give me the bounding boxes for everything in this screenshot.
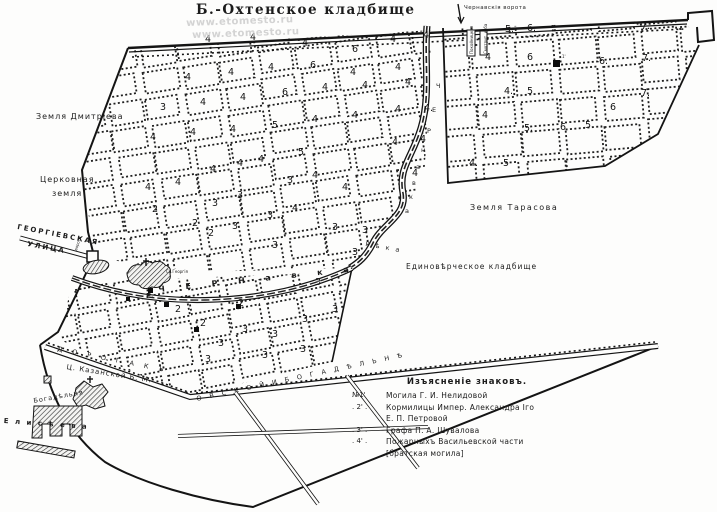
block-number: 4	[342, 182, 348, 193]
legend-row: . 3' .Графа П. А. Шувалова	[352, 426, 582, 435]
block-number: 3	[315, 277, 321, 288]
cemetery-block	[289, 233, 327, 258]
area-dmitrieva: Земля Дмитріева	[36, 113, 124, 121]
cemetery-block	[154, 148, 191, 174]
cemetery-block	[686, 54, 717, 81]
cemetery-block	[302, 69, 337, 95]
area-edinovercheskoe: Единовѣрческое кладбище	[406, 263, 537, 271]
legend-row: Е. П. Петровой	[352, 414, 582, 423]
block-number: 3	[300, 344, 306, 355]
cemetery-block	[111, 126, 148, 152]
cemetery-block	[354, 143, 391, 170]
cemetery-block	[345, 91, 380, 117]
cemetery-block	[648, 116, 688, 143]
block-number: 4	[292, 203, 298, 214]
block-number: 4	[405, 77, 411, 88]
river-letter: Ч	[436, 82, 440, 90]
legend-text: Кормилицы Импер. Александра Iго	[386, 403, 582, 412]
cemetery-block	[610, 154, 648, 182]
cemetery-block	[647, 86, 686, 114]
block-number: 3	[218, 338, 224, 349]
block-number: 4	[312, 114, 318, 125]
cemetery-block	[259, 47, 294, 73]
cemetery-block	[173, 254, 210, 279]
cemetery-block	[483, 131, 523, 157]
block-number: 5.	[524, 123, 533, 134]
cemetery-block	[323, 202, 359, 229]
cemetery-block	[347, 117, 383, 142]
block-number: 4	[322, 82, 328, 93]
keeper-label: Смотрит. изба	[484, 24, 488, 54]
cemetery-block	[282, 207, 319, 233]
river-letter: н	[421, 146, 425, 154]
block-number: 3	[232, 221, 238, 232]
block-number: 3	[287, 175, 293, 186]
block-number: 4	[150, 132, 156, 143]
block-number: 3	[332, 222, 338, 233]
block-number: 6	[560, 122, 566, 133]
cemetery-block	[693, 143, 717, 170]
cemetery-block	[238, 164, 274, 191]
cemetery-block	[438, 104, 478, 130]
block-number: 4	[362, 80, 368, 91]
block-number: 4	[423, 30, 429, 41]
cemetery-block	[143, 67, 181, 93]
cemetery-block	[342, 310, 378, 336]
block-number: 4	[175, 177, 181, 188]
block-number: 7.	[642, 53, 651, 64]
cemetery-block	[278, 346, 313, 372]
block-number: 4	[352, 110, 358, 121]
block-number: 3	[212, 198, 218, 209]
cemetery-block	[137, 400, 173, 424]
river-letter: в	[412, 179, 416, 187]
cemetery-block	[102, 73, 137, 98]
block-number: 3	[205, 354, 211, 365]
cemetery-block	[559, 37, 598, 65]
cemetery-block	[654, 176, 692, 204]
cemetery-block	[679, 0, 717, 20]
cemetery-block	[116, 302, 152, 327]
cemetery-block	[693, 174, 717, 200]
cemetery-block	[261, 74, 297, 99]
block-number: 4	[190, 127, 196, 138]
cemetery-block	[66, 78, 102, 105]
block-number: 2	[208, 228, 214, 239]
block-number: 6.	[527, 23, 536, 34]
cemetery-block	[166, 228, 202, 254]
legend-row: . 2' .Кормилицы Импер. Александра Iго	[352, 403, 582, 412]
legend-text: Графа П. А. Шувалова	[386, 426, 582, 435]
block-number: 6	[352, 44, 358, 55]
cemetery-block	[432, 45, 470, 73]
block-number: 4	[268, 62, 274, 73]
cemetery-block	[442, 213, 480, 239]
block-number: 6.	[599, 56, 608, 67]
cemetery-block	[313, 149, 351, 175]
chernavsky-gate-label: Чернавскія ворота	[464, 6, 526, 12]
map-page: 444644444644344644444454444.444445344442…	[0, 0, 717, 512]
cemetery-block	[87, 211, 124, 236]
cemetery-block	[37, 291, 70, 314]
area-tserkovnaya-1: Церковная	[40, 176, 95, 184]
cemetery-block	[560, 97, 597, 123]
legend-marker: . 4' .	[352, 437, 386, 446]
legend-header: Изъясненіе знаковъ.	[352, 377, 582, 387]
legend-marker: . 3' .	[352, 426, 386, 435]
block-number: 4	[240, 92, 246, 103]
cemetery-block	[152, 121, 188, 148]
block-number: 7.	[641, 21, 650, 32]
block-number: 6	[527, 52, 533, 63]
legend-marker	[352, 414, 386, 423]
block-number: 3	[267, 210, 273, 221]
block-number: 3	[262, 350, 268, 361]
legend-row: №1'Могила Г. И. Нелидовой	[352, 391, 582, 400]
block-number: 3	[237, 190, 243, 201]
small-building	[44, 376, 51, 383]
legend-text: Е. П. Петровой	[386, 414, 582, 423]
block-number: 4	[350, 67, 356, 78]
cemetery-block	[359, 198, 394, 223]
block-number: 4	[210, 164, 216, 175]
block-number: 5	[298, 147, 304, 158]
cemetery-block	[611, 184, 650, 211]
block-number: 4	[395, 62, 401, 73]
block-number: 2	[238, 298, 244, 309]
block-number: 4	[312, 170, 318, 181]
block-number: 2	[152, 204, 158, 215]
block-number: 3	[160, 102, 166, 113]
cemetery-block	[686, 84, 717, 110]
cemetery-block	[59, 52, 94, 77]
cemetery-block	[515, 39, 555, 66]
legend-row: . 4' .Пожарныхъ Васильевской части	[352, 437, 582, 446]
cemetery-block	[311, 122, 348, 149]
cemetery-block	[304, 96, 340, 121]
block-number: 2	[175, 304, 181, 315]
cemetery-block	[267, 298, 300, 322]
river-letter: к	[409, 193, 413, 201]
chernavka-street-prefix: Р.	[146, 293, 154, 300]
legend-marker: . 2' .	[352, 403, 386, 412]
block-number: 5.	[505, 24, 514, 35]
block-number: 4	[200, 97, 206, 108]
cemetery-block	[219, 58, 255, 83]
block-number: 3	[272, 240, 278, 251]
cemetery-block	[202, 365, 235, 388]
morgue-label: Покойницкая	[470, 26, 474, 54]
cemetery-block	[119, 152, 157, 177]
legend-text: Пожарныхъ Васильевской части	[386, 437, 582, 446]
block-number: 4.	[469, 158, 478, 169]
cemetery-block	[130, 232, 167, 257]
block-number: 4	[392, 137, 398, 148]
block-number: 3	[242, 324, 248, 335]
area-tarasova: Земля Тарасова	[470, 204, 558, 212]
legend: Изъясненіе знаковъ. №1'Могила Г. И. Нели…	[352, 377, 582, 460]
block-number: 4	[258, 154, 264, 165]
cemetery-block	[337, 64, 375, 91]
block-number: 6	[610, 102, 616, 113]
block-number: 4	[145, 182, 151, 193]
block-number: 5	[503, 158, 509, 169]
block-number: 2	[200, 318, 206, 329]
cemetery-block	[119, 328, 152, 351]
cemetery-block	[44, 315, 78, 341]
cemetery-block	[99, 407, 132, 432]
grave-marker-1	[553, 60, 560, 67]
block-number: 4	[230, 124, 236, 135]
block-number: 6	[282, 87, 288, 98]
cemetery-block	[250, 244, 285, 271]
river-letter: Е	[432, 106, 436, 114]
block-number: 4.	[504, 86, 513, 97]
river-letter: Р	[427, 127, 431, 135]
block-number: 3	[352, 247, 358, 258]
cemetery-block	[209, 250, 245, 276]
legend-row: [братская могила]	[352, 449, 582, 458]
block-number: 4	[420, 134, 426, 145]
legend-text: [братская могила]	[386, 449, 582, 458]
legend-rows: №1'Могила Г. И. Нелидовой. 2' .Кормилицы…	[352, 391, 582, 458]
block-number: 4	[237, 158, 243, 169]
block-number: 3	[362, 225, 368, 236]
cemetery-block	[311, 341, 345, 365]
legend-marker	[352, 449, 386, 458]
cemetery-block	[603, 64, 642, 92]
cemetery-block	[158, 321, 194, 346]
block-number: 3	[272, 329, 278, 340]
block-number: 4	[228, 67, 234, 78]
legend-marker: №1'	[352, 391, 386, 400]
cemetery-block	[559, 67, 599, 94]
cemetery-block	[356, 170, 394, 196]
cemetery-block	[692, 113, 717, 141]
cemetery-block	[78, 309, 111, 332]
cemetery-block	[401, 219, 436, 244]
cemetery-block	[368, 251, 405, 277]
legend-text: Могила Г. И. Нелидовой	[386, 391, 582, 400]
grave1-label: 1'	[562, 55, 566, 59]
st-george-label: Св.Георгія	[166, 270, 188, 274]
block-number: 2	[192, 218, 198, 229]
almshouse-wing	[17, 441, 75, 458]
block-number: 3	[302, 314, 308, 325]
cemetery-block	[100, 46, 138, 72]
cemetery-block	[649, 146, 686, 172]
block-number: 5	[527, 86, 533, 97]
cemetery-block	[572, 186, 612, 212]
block-number: 4	[482, 110, 488, 121]
block-number: 6	[310, 60, 316, 71]
cemetery-block	[604, 124, 641, 150]
block-number: 4	[302, 38, 308, 49]
block-number: 4	[185, 72, 191, 83]
cemetery-block	[239, 353, 275, 378]
block-number: 5	[272, 120, 278, 131]
block-number: 5	[585, 120, 591, 131]
area-tserkovnaya-2: земля	[52, 190, 82, 198]
block-number: 3	[332, 304, 338, 315]
block-number: 4	[395, 104, 401, 115]
block-number: 7.	[641, 88, 650, 99]
river-letter: а	[405, 207, 409, 215]
block-number: 4	[390, 34, 396, 45]
river-letter: а	[416, 163, 420, 171]
cemetery-block	[515, 70, 552, 96]
